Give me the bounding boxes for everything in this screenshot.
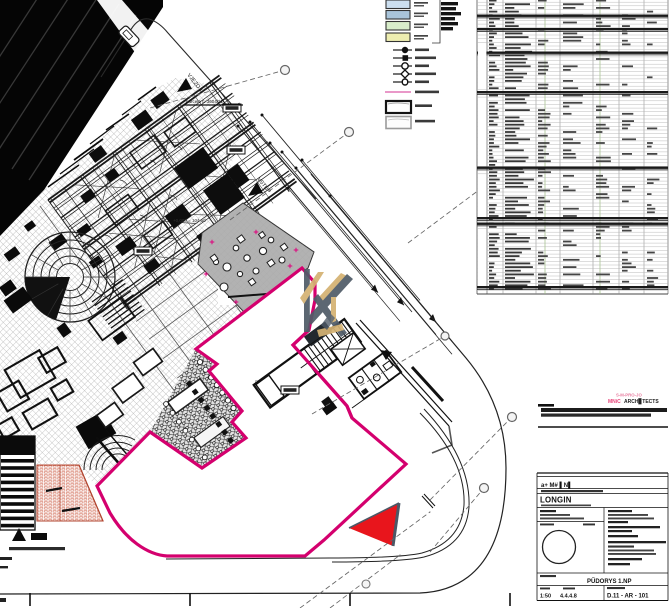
svg-text:PŰDORYS 1.NP: PŰDORYS 1.NP <box>587 578 631 585</box>
svg-text:D.11 - AR - 101: D.11 - AR - 101 <box>607 594 649 600</box>
svg-text:4.4.4.8: 4.4.4.8 <box>560 594 577 600</box>
svg-text:parcela c. 3604/21: parcela c. 3604/21 <box>186 99 224 104</box>
svg-text:a+ M# ▌N▌: a+ M# ▌N▌ <box>541 481 572 489</box>
svg-text:1:50: 1:50 <box>540 594 551 600</box>
svg-text:MNiC: MNiC <box>608 399 621 405</box>
svg-text:+0,000 = 104,50: +0,000 = 104,50 <box>173 218 206 223</box>
svg-text:S-M-PRO-JO: S-M-PRO-JO <box>616 393 642 398</box>
svg-text:LONGIN: LONGIN <box>540 496 572 505</box>
svg-text:ARCH▊TECTS: ARCH▊TECTS <box>624 398 659 405</box>
